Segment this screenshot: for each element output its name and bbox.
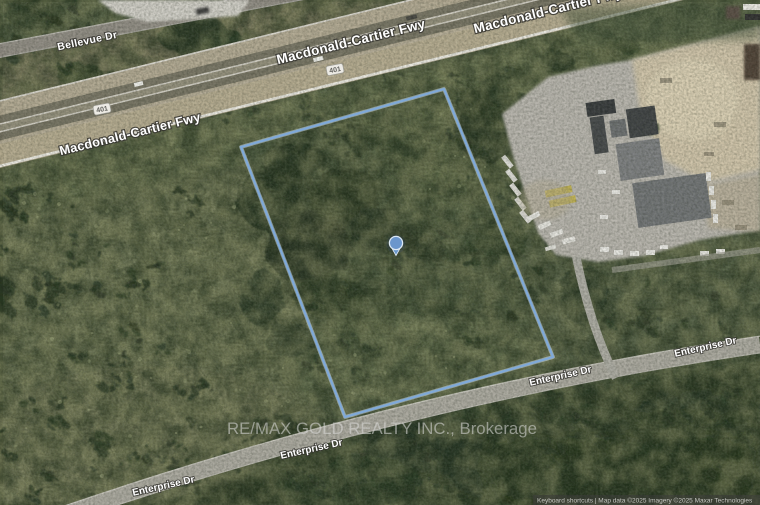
svg-text:RE/MAX GOLD REALTY INC., Broke: RE/MAX GOLD REALTY INC., Brokerage <box>227 419 537 438</box>
svg-text:Keyboard shortcuts | Map data: Keyboard shortcuts | Map data ©2025 Imag… <box>537 497 753 505</box>
